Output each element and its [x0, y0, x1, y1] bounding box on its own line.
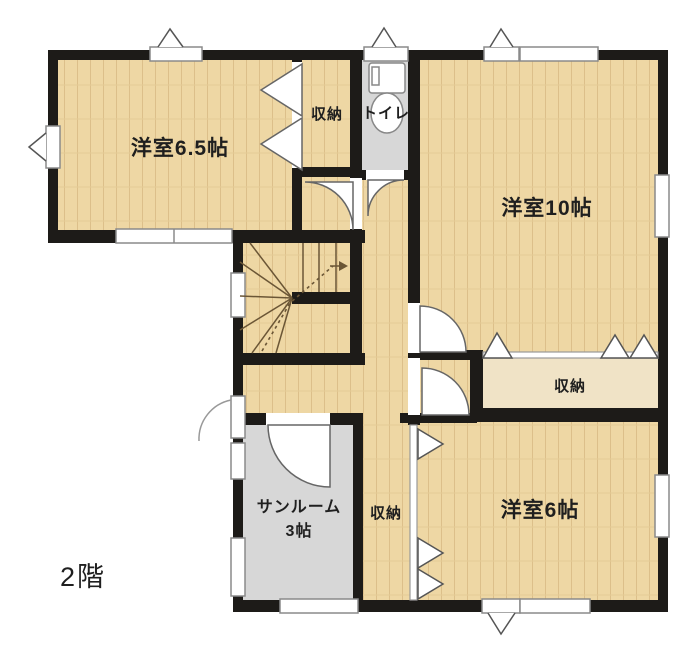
window-top-room10-small [484, 47, 519, 61]
wall-closet-mid-bottom [470, 408, 668, 422]
closet-top-label: 収納 [311, 105, 343, 123]
window-right-room6 [655, 475, 669, 537]
floor-plan-drawing: 洋室6.5帖 収納 トイレ 洋室10帖 収納 サンルーム 3帖 収納 洋室6帖 … [0, 0, 700, 654]
awning-window-triangle-icon [488, 613, 515, 634]
window-bottom-room6-small [482, 599, 520, 613]
window-left-room65 [46, 126, 60, 168]
closet-bottom-track [410, 425, 417, 600]
window-top-room65 [150, 47, 202, 61]
window-bottom-room6-wide [520, 599, 590, 613]
window-left-sunroom-lower [231, 538, 245, 596]
window-right-room10 [655, 175, 669, 237]
sunroom-label-line1: サンルーム [257, 498, 342, 516]
toilet-handle-icon [372, 67, 379, 85]
sunroom-label-line2: 3帖 [286, 521, 313, 540]
wall-room65-right-lower [292, 168, 302, 242]
awning-window-triangle-icon [372, 28, 396, 47]
wall-room65-right-top [292, 50, 302, 64]
window-left-hall [231, 396, 245, 438]
opening-room10 [408, 303, 420, 353]
opening-sunroom [266, 413, 330, 425]
room-6-label: 洋室6帖 [501, 498, 580, 522]
floor-plan-canvas: 洋室6.5帖 収納 トイレ 洋室10帖 収納 サンルーム 3帖 収納 洋室6帖 … [0, 0, 700, 654]
wall-sunroom-right [353, 425, 363, 600]
wall-stairs-inner [292, 292, 354, 304]
wall-stairs-bottom [233, 353, 365, 365]
window-left-sunroom-upper [231, 443, 245, 479]
awning-window-triangle-icon [158, 29, 183, 47]
awning-window-triangle-icon [29, 133, 46, 161]
wall-toilet-left [350, 50, 362, 180]
wall-sunroom-top-right [330, 413, 363, 425]
window-left-stairs [231, 273, 245, 317]
awning-window-triangle-icon [490, 29, 513, 47]
window-swing-arc-icon [199, 400, 231, 441]
window-top-toilet [364, 47, 408, 61]
closet-bottom-label: 収納 [370, 504, 402, 522]
opening-toilet [366, 170, 404, 180]
opening-room6 [408, 358, 420, 415]
room-6-5-label: 洋室6.5帖 [131, 136, 229, 160]
window-bottom-sunroom [280, 599, 358, 613]
closet-mid-label: 収納 [554, 377, 586, 395]
wall-toilet-bottom-right [402, 170, 420, 180]
toilet-label: トイレ [362, 105, 410, 122]
window-top-room10-wide [520, 47, 598, 61]
room-10-label: 洋室10帖 [501, 196, 592, 220]
floor-number-label: 2階 [60, 562, 106, 592]
